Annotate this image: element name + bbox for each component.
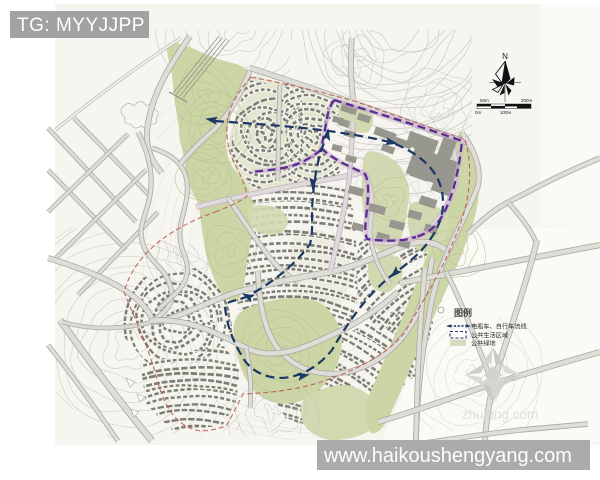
svg-text:www.haikoushengyang.com: www.haikoushengyang.com xyxy=(323,445,572,467)
svg-text:50m: 50m xyxy=(480,98,489,103)
svg-text:100m: 100m xyxy=(500,110,512,115)
svg-text:N: N xyxy=(502,52,508,61)
svg-text:电瓶车、自行车流线: 电瓶车、自行车流线 xyxy=(471,323,527,331)
svg-text:公共生活区域: 公共生活区域 xyxy=(471,332,508,340)
svg-text:200m: 200m xyxy=(521,98,533,103)
svg-text:0m: 0m xyxy=(475,110,482,115)
svg-text:公共绿地: 公共绿地 xyxy=(471,340,496,348)
svg-text:图例: 图例 xyxy=(454,307,472,318)
svg-text:TG: MYYJJPP: TG: MYYJJPP xyxy=(17,15,145,36)
svg-text:zhulong.com: zhulong.com xyxy=(462,407,539,422)
